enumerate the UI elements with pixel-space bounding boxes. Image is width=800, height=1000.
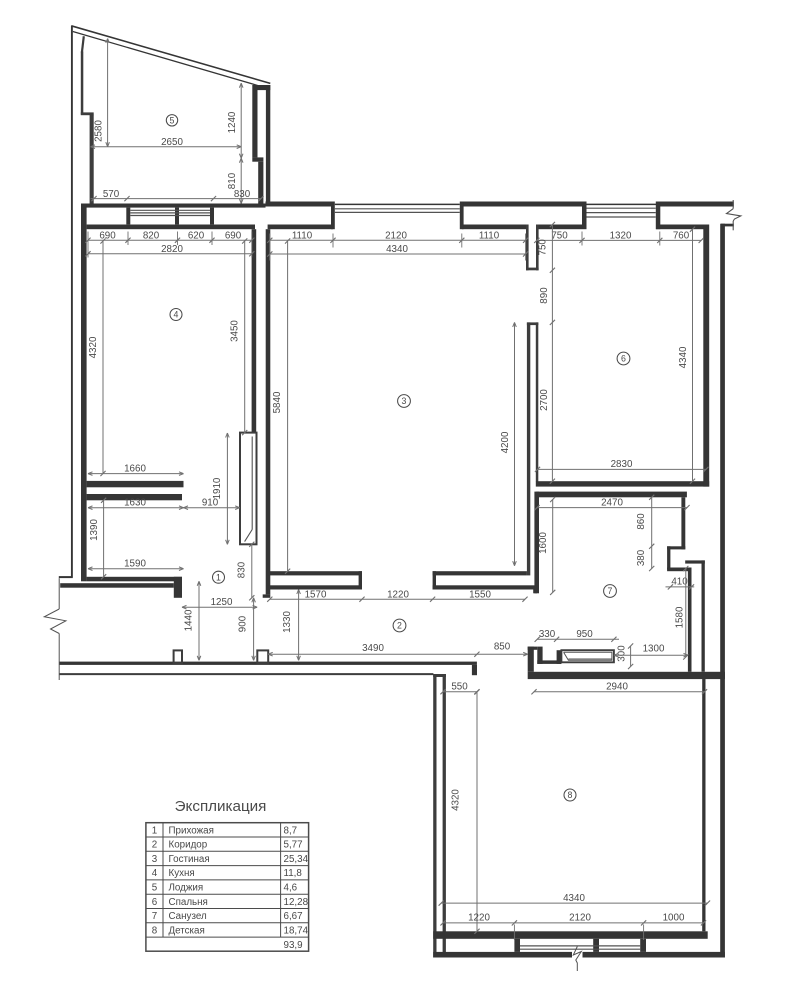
svg-text:1330: 1330 [282, 611, 293, 633]
svg-text:830: 830 [237, 561, 248, 578]
svg-text:Экспликация: Экспликация [175, 798, 267, 815]
svg-text:2120: 2120 [569, 913, 591, 924]
svg-text:1910: 1910 [212, 477, 223, 499]
svg-text:1250: 1250 [211, 597, 233, 608]
svg-text:2700: 2700 [539, 389, 550, 411]
svg-text:910: 910 [202, 498, 219, 509]
svg-text:6,67: 6,67 [284, 911, 303, 922]
svg-text:2940: 2940 [606, 681, 628, 692]
svg-text:2580: 2580 [94, 120, 105, 142]
svg-text:3450: 3450 [229, 320, 240, 342]
svg-text:4: 4 [174, 310, 179, 320]
svg-text:5,77: 5,77 [284, 840, 303, 851]
svg-text:18,74: 18,74 [284, 925, 309, 936]
svg-text:1600: 1600 [538, 532, 549, 554]
svg-text:1: 1 [152, 825, 157, 836]
svg-text:890: 890 [539, 287, 550, 304]
svg-text:810: 810 [227, 172, 238, 189]
svg-text:550: 550 [451, 681, 468, 692]
svg-text:12,28: 12,28 [284, 897, 309, 908]
svg-text:380: 380 [636, 549, 647, 566]
svg-text:1580: 1580 [675, 606, 686, 628]
svg-text:330: 330 [539, 629, 556, 640]
svg-text:950: 950 [576, 629, 593, 640]
svg-text:1220: 1220 [468, 913, 490, 924]
svg-text:1630: 1630 [124, 498, 146, 509]
svg-text:1440: 1440 [184, 609, 195, 631]
svg-text:4: 4 [152, 868, 158, 879]
svg-text:1000: 1000 [663, 913, 685, 924]
svg-text:2830: 2830 [611, 459, 633, 470]
svg-text:850: 850 [494, 642, 511, 653]
svg-text:2: 2 [152, 840, 157, 851]
svg-text:4340: 4340 [678, 346, 689, 368]
svg-text:Санузел: Санузел [169, 911, 207, 922]
svg-text:2470: 2470 [601, 497, 623, 508]
svg-text:Детская: Детская [169, 925, 205, 936]
svg-text:900: 900 [237, 615, 248, 632]
svg-text:1660: 1660 [124, 464, 146, 475]
svg-text:3: 3 [402, 396, 407, 406]
svg-text:7: 7 [608, 586, 613, 596]
svg-text:4340: 4340 [563, 893, 585, 904]
svg-text:1240: 1240 [227, 111, 238, 133]
svg-text:6: 6 [621, 354, 626, 364]
svg-text:1300: 1300 [643, 643, 665, 654]
svg-text:Спальня: Спальня [169, 897, 208, 908]
svg-text:Кухня: Кухня [169, 868, 195, 879]
svg-text:4,6: 4,6 [284, 882, 298, 893]
svg-text:25,34: 25,34 [284, 854, 309, 865]
svg-text:5840: 5840 [272, 391, 283, 413]
svg-text:1: 1 [216, 572, 221, 582]
svg-text:8: 8 [568, 790, 573, 800]
svg-text:4320: 4320 [450, 789, 461, 811]
svg-text:Прихожая: Прихожая [169, 825, 214, 836]
svg-text:6: 6 [152, 897, 158, 908]
svg-text:2: 2 [397, 621, 402, 631]
svg-text:5: 5 [170, 115, 175, 125]
svg-text:5: 5 [152, 882, 158, 893]
svg-text:93,9: 93,9 [284, 940, 303, 951]
svg-text:Лоджия: Лоджия [169, 882, 204, 893]
svg-text:8: 8 [152, 925, 158, 936]
svg-text:860: 860 [636, 513, 647, 530]
svg-text:4200: 4200 [500, 431, 511, 453]
svg-text:Гостиная: Гостиная [169, 854, 210, 865]
svg-text:Коридор: Коридор [169, 840, 208, 851]
svg-text:3: 3 [152, 854, 158, 865]
svg-text:4320: 4320 [88, 336, 99, 358]
svg-text:7: 7 [152, 911, 157, 922]
svg-text:8,7: 8,7 [284, 825, 298, 836]
svg-text:11,8: 11,8 [284, 868, 303, 879]
svg-text:1390: 1390 [89, 519, 100, 541]
svg-text:3490: 3490 [362, 643, 384, 654]
svg-text:1590: 1590 [124, 559, 146, 570]
svg-text:750: 750 [537, 239, 548, 256]
